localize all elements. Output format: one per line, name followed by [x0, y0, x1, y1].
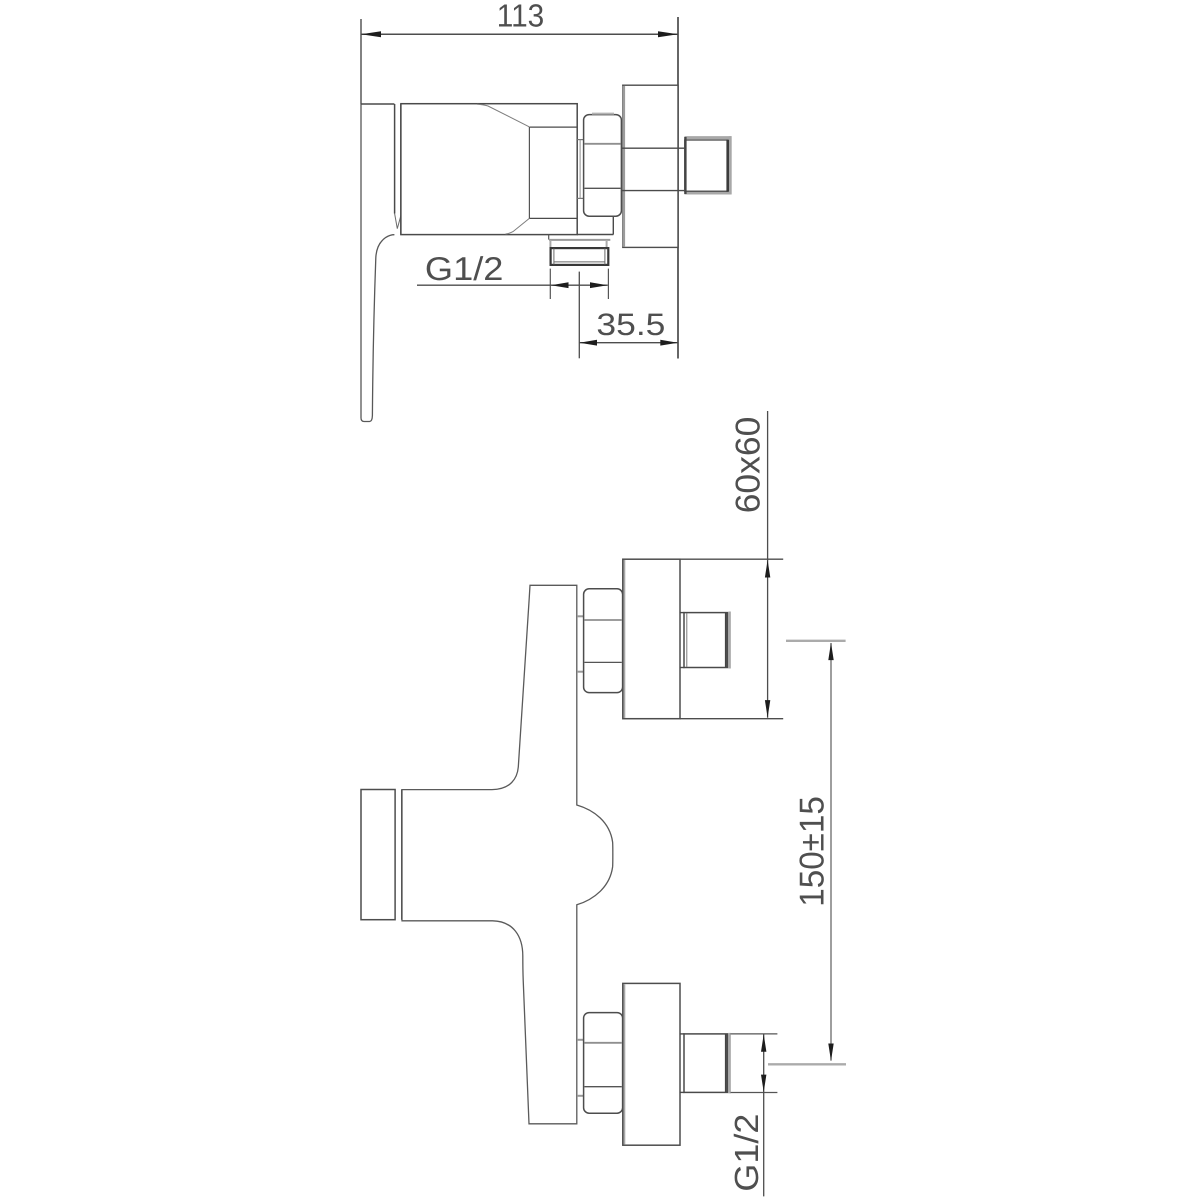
svg-text:60x60: 60x60: [730, 417, 768, 514]
svg-text:G1/2: G1/2: [425, 250, 504, 287]
svg-text:35.5: 35.5: [596, 307, 665, 342]
svg-text:150±15: 150±15: [794, 796, 832, 907]
svg-text:G1/2: G1/2: [729, 1114, 766, 1192]
svg-text:113: 113: [497, 0, 545, 34]
